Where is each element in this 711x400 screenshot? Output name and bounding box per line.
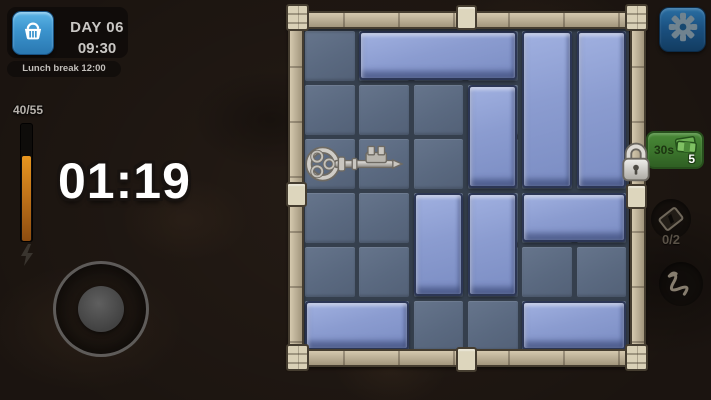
settings-button[interactable]: [659, 7, 706, 52]
grid-cell: [305, 85, 355, 135]
booster-spring-button[interactable]: [659, 262, 703, 306]
puzzle-block[interactable]: [414, 193, 463, 296]
level-timer: 01:19: [58, 152, 191, 210]
grid-cell: [414, 85, 464, 135]
frame-corner-bl: [286, 344, 309, 371]
grid-cell: [577, 247, 627, 297]
gear-icon: [668, 12, 698, 47]
lightning-bolt-icon: [19, 244, 35, 271]
grid-cell: [414, 139, 464, 189]
money-icon: [673, 135, 699, 162]
frame-corner-tr: [625, 4, 648, 31]
frame-corner-tl: [286, 4, 309, 31]
grid-cell: [359, 247, 409, 297]
basket-icon: [20, 18, 46, 49]
energy-count-label: 40/55: [8, 103, 48, 117]
padlock-icon: [620, 139, 652, 184]
puzzle-block[interactable]: [468, 193, 517, 296]
grid-cell: [305, 247, 355, 297]
grid-cell: [305, 31, 355, 81]
day-label: DAY 06: [64, 19, 130, 36]
grid-cell: [414, 301, 464, 351]
game-screen: DAY 06 09:30 Lunch break 12:00 40/55 01:…: [0, 0, 711, 400]
reward-badge[interactable]: 30s 5: [646, 131, 704, 169]
joystick-knob[interactable]: [78, 286, 124, 332]
card-icon: [657, 206, 684, 232]
booster-card-count: 0/2: [648, 232, 694, 247]
energy-gauge: [20, 123, 33, 242]
puzzle-block[interactable]: [359, 31, 517, 80]
puzzle-block[interactable]: [522, 31, 571, 188]
frame-joint-left: [286, 182, 307, 207]
grid-cell: [468, 301, 518, 351]
frame-joint-bottom: [456, 347, 477, 372]
shop-button[interactable]: [12, 11, 54, 55]
puzzle-block[interactable]: [522, 301, 626, 350]
board-grid: [303, 29, 629, 353]
frame-joint-right: [626, 184, 647, 209]
event-label: Lunch break 12:00: [7, 61, 121, 77]
exit-lock: [620, 139, 652, 184]
clock-label: 09:30: [64, 40, 130, 57]
puzzle-block[interactable]: [305, 301, 409, 350]
reward-amount-label: 5: [688, 152, 695, 166]
key-piece[interactable]: [303, 140, 408, 188]
spring-icon: [666, 267, 696, 302]
puzzle-board: [286, 4, 648, 370]
energy-gauge-fill: [22, 156, 31, 241]
puzzle-block[interactable]: [468, 85, 517, 188]
grid-cell: [359, 85, 409, 135]
joystick[interactable]: [53, 261, 149, 357]
puzzle-block[interactable]: [577, 31, 626, 188]
puzzle-block[interactable]: [522, 193, 626, 242]
grid-cell: [359, 193, 409, 243]
grid-cell: [305, 193, 355, 243]
frame-corner-br: [625, 344, 648, 371]
grid-cell: [522, 247, 572, 297]
key-icon: [303, 140, 407, 188]
frame-joint-top: [456, 5, 477, 30]
